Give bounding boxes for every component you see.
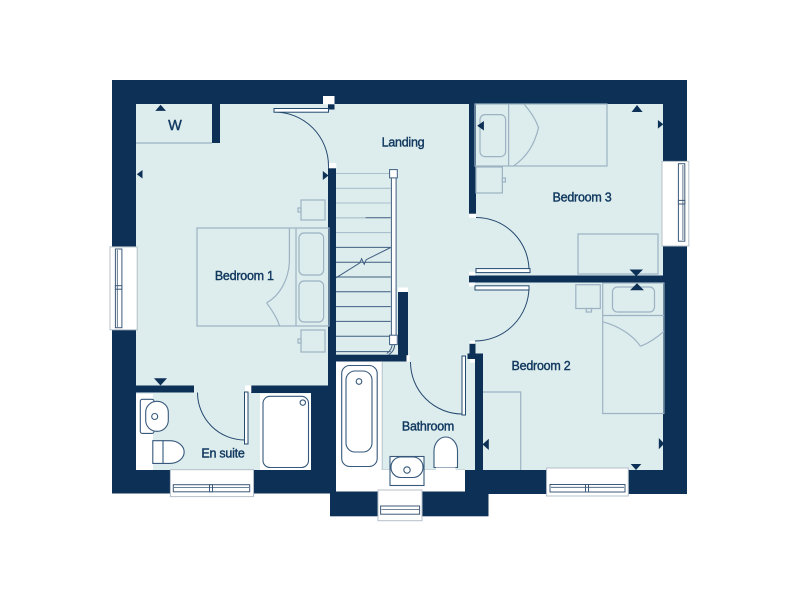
svg-text:Landing: Landing xyxy=(382,136,425,150)
svg-text:Bedroom 2: Bedroom 2 xyxy=(512,359,571,373)
svg-text:W: W xyxy=(168,118,182,134)
svg-text:Bathroom: Bathroom xyxy=(402,419,454,433)
svg-text:Bedroom 3: Bedroom 3 xyxy=(553,191,612,205)
svg-text:Bedroom 1: Bedroom 1 xyxy=(215,269,274,283)
svg-text:En suite: En suite xyxy=(201,446,244,460)
